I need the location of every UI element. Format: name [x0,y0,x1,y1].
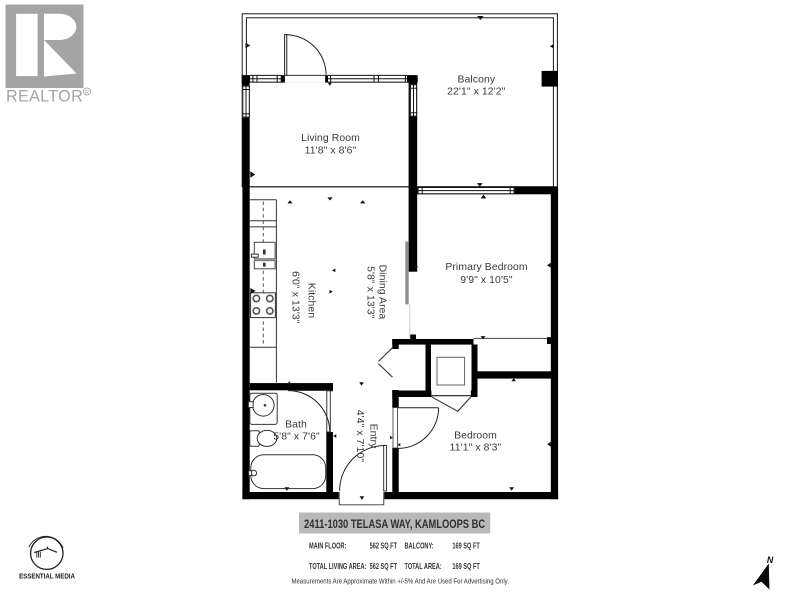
svg-text:11'1" x 8'3": 11'1" x 8'3" [450,443,502,454]
svg-text:5'8" x 13'3": 5'8" x 13'3" [365,266,376,319]
svg-text:Living Room: Living Room [301,133,360,144]
svg-text:562 SQ FT: 562 SQ FT [370,543,398,551]
svg-text:Bath: Bath [285,419,307,430]
svg-text:R: R [85,90,89,96]
svg-text:11'8" x 8'6": 11'8" x 8'6" [305,146,357,157]
svg-text:MAIN FLOOR:: MAIN FLOOR: [309,543,346,551]
svg-text:9'9" x 10'5": 9'9" x 10'5" [460,275,513,286]
svg-text:4'4" x 7'10": 4'4" x 7'10" [354,410,365,463]
svg-text:REALTOR: REALTOR [6,88,83,106]
svg-text:2411-1030 TELASA WAY, KAMLOOPS: 2411-1030 TELASA WAY, KAMLOOPS BC [304,518,485,531]
svg-text:5'8" x 7'6": 5'8" x 7'6" [273,432,320,443]
svg-text:Kitchen: Kitchen [305,283,316,318]
svg-text:562 SQ FT: 562 SQ FT [370,563,398,571]
svg-text:TOTAL AREA:: TOTAL AREA: [405,563,442,571]
svg-text:Measurements Are Approximate W: Measurements Are Approximate Within +/-5… [291,578,509,586]
svg-text:ESSENTIAL MEDIA: ESSENTIAL MEDIA [19,573,75,581]
svg-text:6'0" x 13'3": 6'0" x 13'3" [290,271,301,324]
svg-text:Entry: Entry [368,424,379,449]
svg-text:22'1" x 12'2": 22'1" x 12'2" [447,86,505,97]
svg-text:TOTAL LIVING AREA:: TOTAL LIVING AREA: [309,563,366,571]
svg-text:Primary Bedroom: Primary Bedroom [445,262,527,273]
svg-text:Balcony: Balcony [457,74,495,85]
svg-text:169 SQ FT: 169 SQ FT [452,543,480,551]
svg-text:Bedroom: Bedroom [454,431,497,442]
svg-text:Dining Area: Dining Area [377,265,388,320]
svg-text:BALCONY:: BALCONY: [405,543,434,551]
svg-text:169 SQ FT: 169 SQ FT [452,563,480,571]
svg-text:N: N [767,555,774,565]
